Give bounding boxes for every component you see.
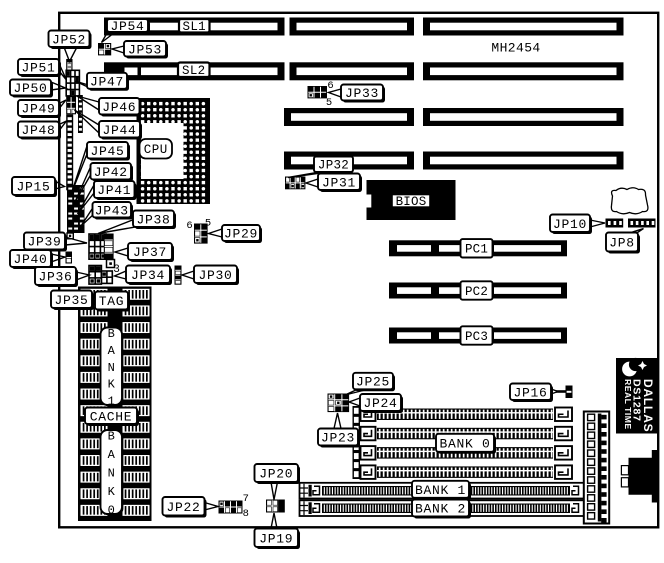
svg-text:B: B [108,327,115,341]
svg-text:JP19: JP19 [259,531,293,546]
svg-text:6: 6 [186,220,192,232]
svg-text:N: N [108,361,115,375]
svg-text:7: 7 [243,493,249,505]
svg-text:K: K [108,485,116,499]
svg-text:6: 6 [327,80,333,92]
svg-text:BANK 1: BANK 1 [415,483,466,498]
svg-text:JP15: JP15 [16,180,50,195]
svg-text:JP31: JP31 [322,175,356,190]
svg-text:PC3: PC3 [465,330,488,344]
svg-text:JP33: JP33 [345,86,379,101]
svg-text:CPU: CPU [144,143,168,157]
svg-text:JP47: JP47 [90,74,124,89]
svg-text:A: A [108,344,116,358]
svg-text:0: 0 [108,504,115,518]
svg-text:SL1: SL1 [183,20,206,34]
svg-text:PC1: PC1 [465,243,488,257]
svg-text:TAG: TAG [99,294,125,309]
svg-text:N: N [108,467,115,481]
svg-text:JP49: JP49 [21,102,55,117]
svg-text:JP38: JP38 [136,212,170,227]
svg-text:BANK 2: BANK 2 [415,502,466,517]
svg-text:JP45: JP45 [90,144,124,159]
svg-text:JP54: JP54 [110,19,144,34]
svg-text:JP8: JP8 [609,236,635,251]
svg-text:BANK 0: BANK 0 [439,436,490,451]
svg-text:JP37: JP37 [133,245,167,260]
svg-text:B: B [108,430,115,444]
svg-text:JP52: JP52 [52,32,86,47]
svg-text:BIOS: BIOS [396,195,427,209]
svg-text:JP46: JP46 [102,100,136,115]
svg-text:JP35: JP35 [54,293,88,308]
svg-text:REAL TIME: REAL TIME [623,379,633,430]
svg-text:1: 1 [108,395,115,409]
svg-text:JP10: JP10 [553,217,587,232]
svg-text:SL2: SL2 [182,64,205,78]
svg-text:A: A [108,448,116,462]
svg-text:JP44: JP44 [102,123,136,138]
svg-text:JP39: JP39 [27,235,61,250]
svg-text:JP48: JP48 [21,123,55,138]
svg-text:JP43: JP43 [95,203,129,218]
svg-text:JP20: JP20 [259,467,293,482]
svg-text:5: 5 [326,97,332,109]
svg-text:JP32: JP32 [318,159,349,173]
svg-text:JP16: JP16 [513,385,547,400]
svg-text:JP29: JP29 [224,227,258,242]
svg-text:JP53: JP53 [128,42,162,57]
svg-text:5: 5 [205,218,211,230]
svg-text:MH2454: MH2454 [491,41,540,56]
svg-text:JP30: JP30 [198,268,232,283]
svg-text:PC2: PC2 [465,285,488,299]
svg-text:JP24: JP24 [363,396,397,411]
svg-text:JP34: JP34 [131,268,165,283]
svg-text:K: K [108,378,116,392]
svg-text:JP36: JP36 [38,270,72,285]
svg-text:JP50: JP50 [13,81,47,96]
svg-text:JP51: JP51 [21,61,55,76]
svg-text:JP22: JP22 [166,500,200,515]
svg-text:JP40: JP40 [13,252,47,267]
svg-text:JP42: JP42 [94,165,128,180]
svg-text:JP41: JP41 [97,183,131,198]
svg-text:8: 8 [243,508,249,520]
svg-text:JP25: JP25 [356,375,390,390]
svg-text:CACHE: CACHE [90,409,133,424]
svg-text:JP23: JP23 [321,431,355,446]
